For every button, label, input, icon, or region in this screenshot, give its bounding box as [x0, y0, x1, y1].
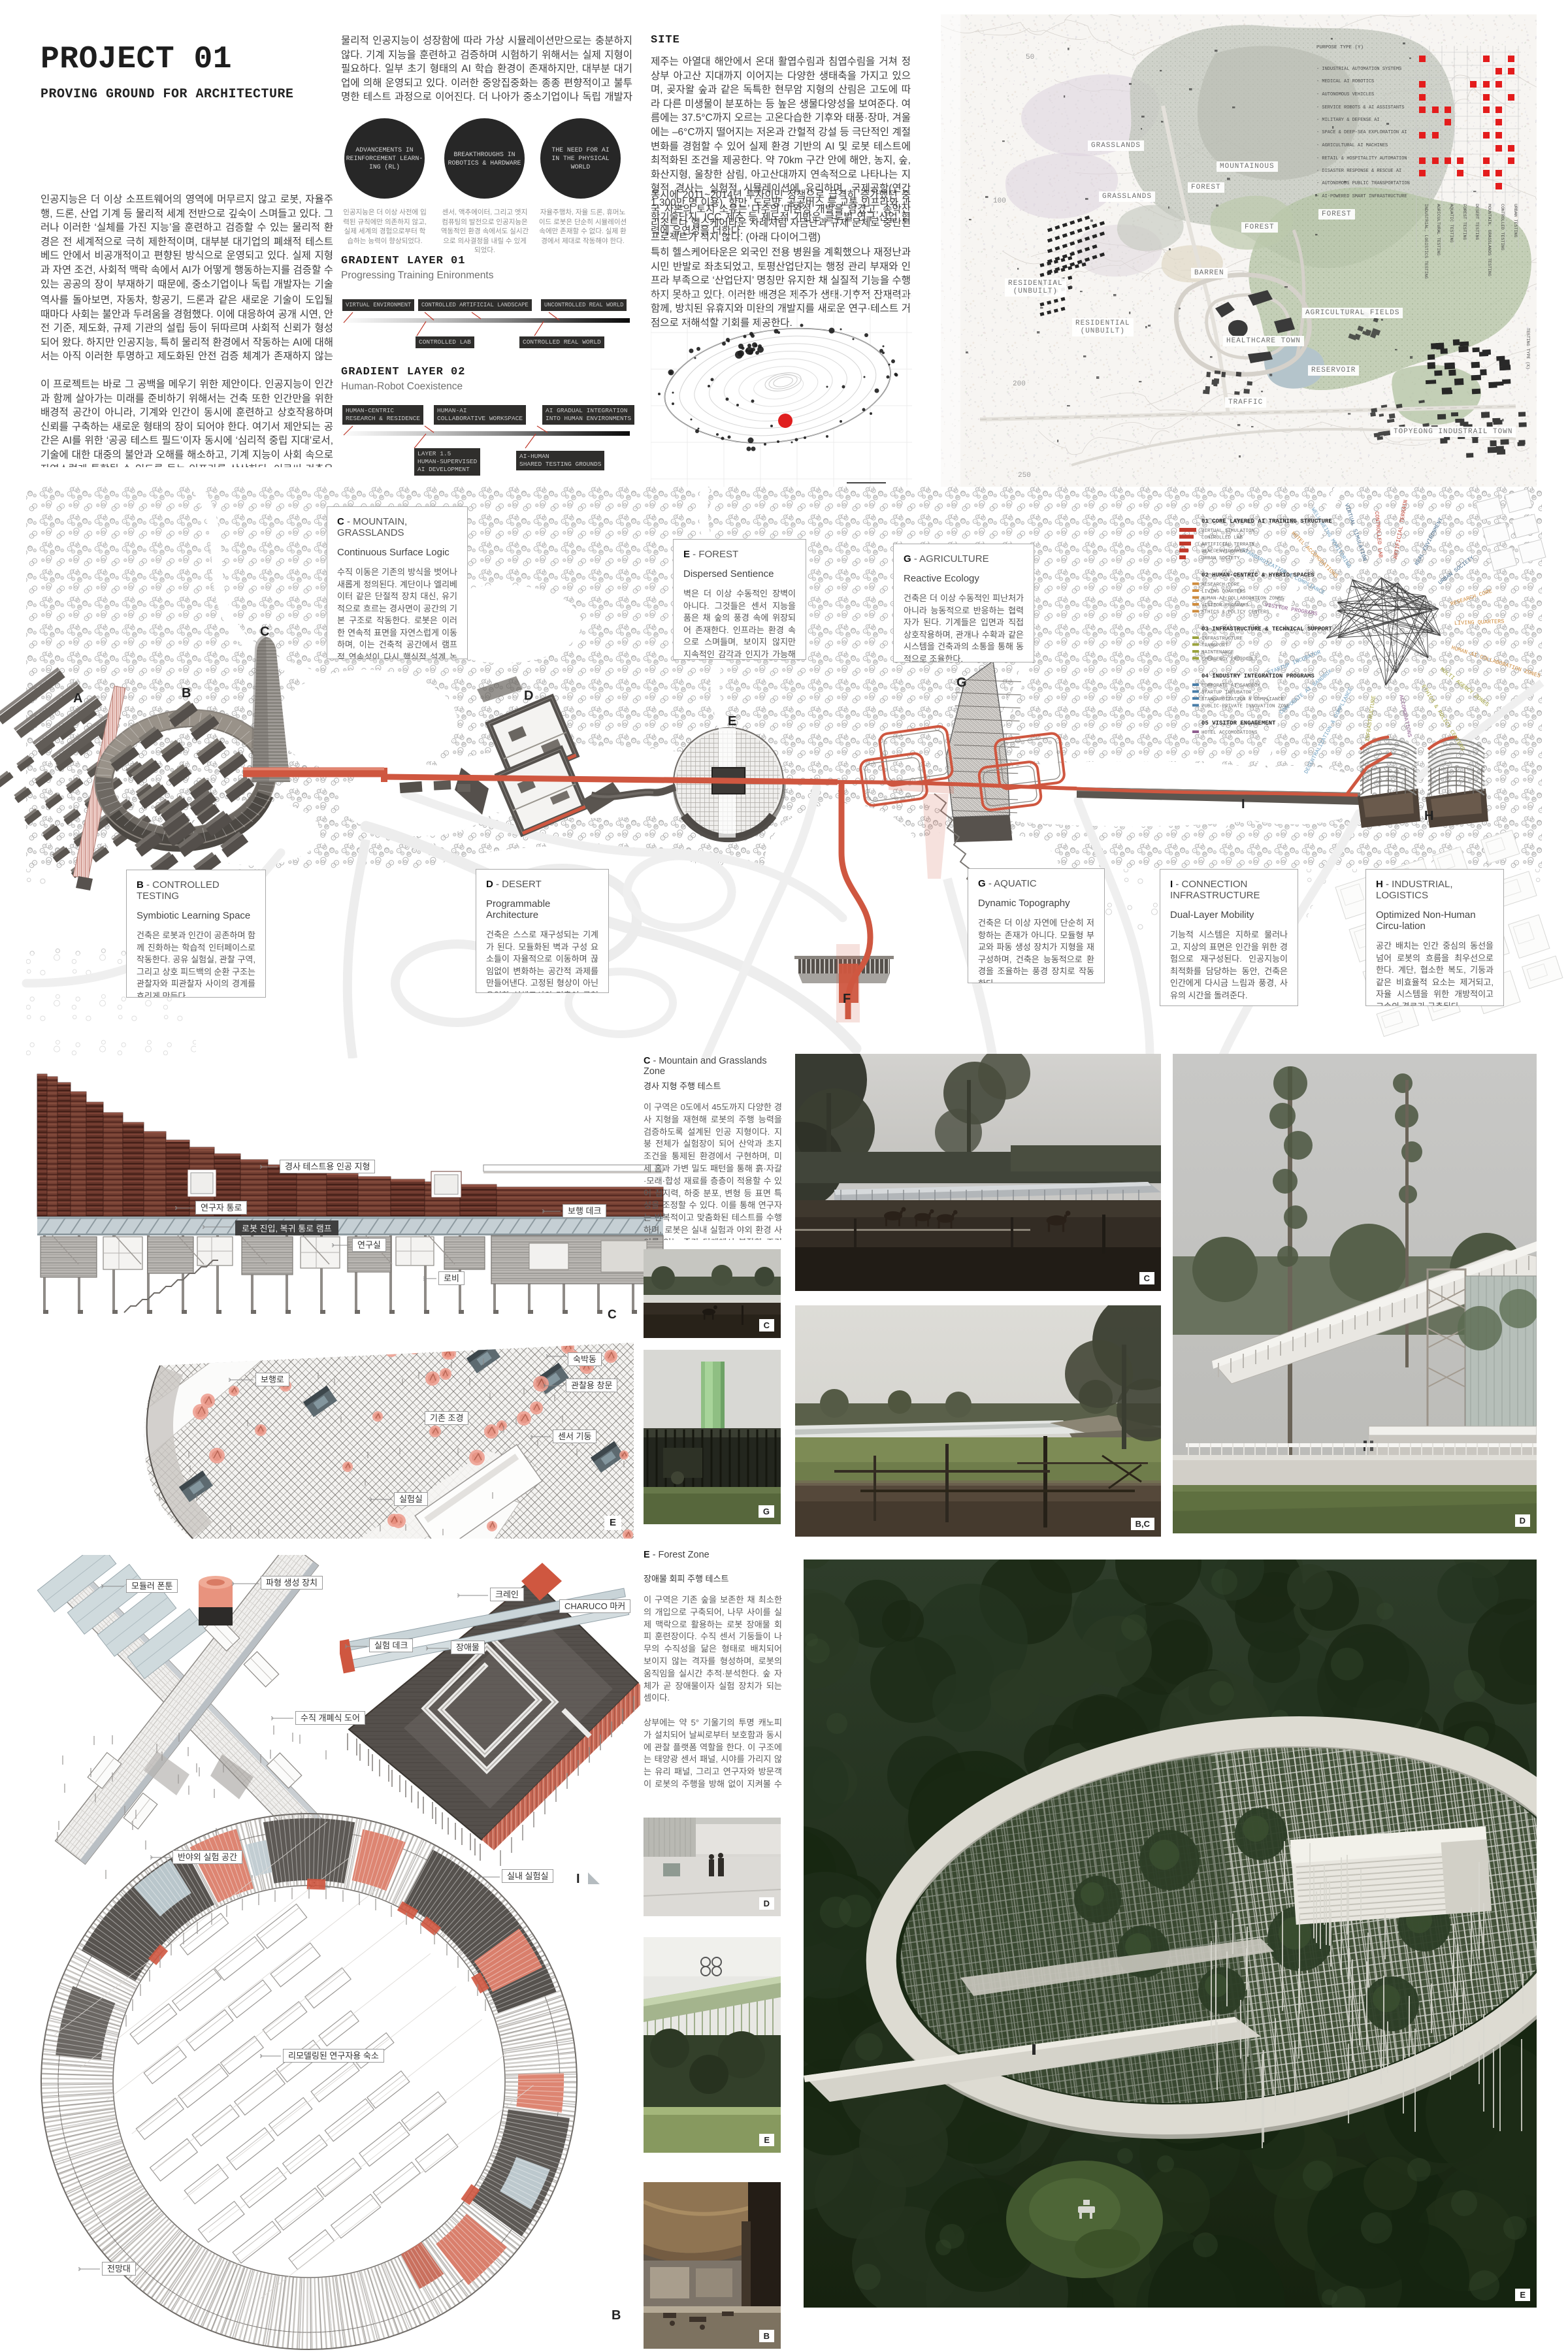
svg-text:INFRASTRUCTURE: INFRASTRUCTURE: [1201, 636, 1243, 642]
svg-text:B: B: [182, 686, 191, 700]
svg-text:STANDARDIZATION & COMPLIANCE: STANDARDIZATION & COMPLIANCE: [1201, 697, 1284, 702]
svg-text:G: G: [956, 676, 967, 690]
svg-text:LIVING QUARTERS: LIVING QUARTERS: [1201, 589, 1246, 595]
svg-text:HUMAN-AI COLLABORATION ZONES: HUMAN-AI COLLABORATION ZONES: [1201, 596, 1284, 602]
svg-text:- AUTONOMOUS PUBLIC TRANSPORTA: - AUTONOMOUS PUBLIC TRANSPORTATION: [1316, 181, 1410, 186]
svg-text:PURPOSE TYPE (Y): PURPOSE TYPE (Y): [1316, 45, 1364, 50]
svg-text:ARTIFICIAL TERRAIN: ARTIFICIAL TERRAIN: [1201, 542, 1254, 547]
svg-text:MAINTENANCE: MAINTENANCE: [1201, 650, 1234, 655]
svg-text:- AGRICULTURAL AI MACHINES: - AGRICULTURAL AI MACHINES: [1316, 143, 1388, 148]
svg-text:MOUNTAIN, GRASSLANDS TESTING: MOUNTAIN, GRASSLANDS TESTING: [1487, 204, 1492, 276]
svg-text:CONTROLLED LAB: CONTROLLED LAB: [1201, 536, 1243, 541]
svg-text:04 INDUSTRY INTEGRATION PROGRA: 04 INDUSTRY INTEGRATION PROGRAMS: [1201, 673, 1315, 679]
svg-text:- SPACE & DEEP-SEA EXPLORATION: - SPACE & DEEP-SEA EXPLORATION AI: [1316, 130, 1407, 135]
svg-text:INDUSTRIAL, LOGISTICS TESTING: INDUSTRIAL, LOGISTICS TESTING: [1424, 204, 1428, 279]
svg-text:HOTEL ACCOMODATIONS: HOTEL ACCOMODATIONS: [1201, 730, 1258, 736]
svg-text:FOREST TESTING: FOREST TESTING: [1462, 204, 1467, 240]
svg-text:01 CORE LAYERED AI TRAINING ST: 01 CORE LAYERED AI TRAINING STRUCTURE: [1201, 518, 1332, 525]
svg-text:- DISASTER RESPONSE & RESCUE A: - DISASTER RESPONSE & RESCUE AI: [1316, 169, 1401, 174]
svg-text:AQUATIC TESTING: AQUATIC TESTING: [1449, 204, 1454, 242]
svg-text:VISITOR PROGRAMS: VISITOR PROGRAMS: [1201, 603, 1249, 608]
svg-text:RESEARCH CORE: RESEARCH CORE: [1201, 583, 1240, 588]
svg-text:- AI-POWERED SMART INFRASTRUCT: - AI-POWERED SMART INFRASTRUCTURE: [1316, 194, 1407, 199]
svg-text:AGRICULTURAL TESTING: AGRICULTURAL TESTING: [1436, 204, 1441, 255]
svg-text:05 VISITOR ENGAGEMENT: 05 VISITOR ENGAGEMENT: [1201, 720, 1276, 727]
svg-text:D: D: [524, 689, 533, 703]
svg-text:DESERT TESTING: DESERT TESTING: [1475, 204, 1479, 240]
svg-text:F: F: [843, 992, 851, 1006]
svg-text:TRANSPORT: TRANSPORT: [1201, 644, 1228, 649]
svg-text:STARTUP INCUBATOR: STARTUP INCUBATOR: [1201, 691, 1252, 696]
svg-text:I: I: [1241, 797, 1245, 811]
svg-text:ETHICS & POLICY CENTERS: ETHICS & POLICY CENTERS: [1201, 610, 1269, 615]
svg-text:EMERGENCY PROTOCOLS: EMERGENCY PROTOCOLS: [1201, 657, 1258, 662]
svg-text:URBAN TESTING: URBAN TESTING: [1513, 204, 1518, 237]
svg-text:03 INFRASTRUCTURE & TECHNICAL: 03 INFRASTRUCTURE & TECHNICAL SUPPORT: [1201, 626, 1332, 632]
svg-text:CONTROLLED TESTING: CONTROLLED TESTING: [1500, 204, 1505, 250]
svg-text:- RETAIL & HOSPITALITY AUTOMAT: - RETAIL & HOSPITALITY AUTOMATION: [1316, 156, 1407, 161]
svg-text:- INDUSTRIAL AUTOMATION SYSTEM: - INDUSTRIAL AUTOMATION SYSTEMS: [1316, 67, 1401, 72]
svg-text:URBAN SOCIETY: URBAN SOCIETY: [1201, 556, 1240, 561]
svg-text:- MILITARY & DEFENSE AI: - MILITARY & DEFENSE AI: [1316, 118, 1380, 123]
svg-text:A: A: [73, 691, 82, 706]
svg-text:C: C: [260, 625, 269, 639]
svg-text:B: B: [612, 2308, 621, 2323]
svg-text:REAL ENVIRONMENT: REAL ENVIRONMENT: [1201, 549, 1249, 555]
svg-text:H: H: [1424, 809, 1433, 823]
svg-text:VIRTUAL SIMULATION: VIRTUAL SIMULATION: [1201, 529, 1254, 534]
svg-text:02 HUMAN-CENTRIC & HYBRID SPAC: 02 HUMAN-CENTRIC & HYBRID SPACES: [1201, 572, 1315, 579]
svg-text:- AUTONOMOUS VEHICLES: - AUTONOMOUS VEHICLES: [1316, 92, 1374, 97]
svg-text:CORPORATE AI SANDBOX: CORPORATE AI SANDBOX: [1201, 683, 1261, 689]
svg-text:E: E: [728, 714, 736, 728]
svg-text:- MEDICAL AI ROBOTICS: - MEDICAL AI ROBOTICS: [1316, 79, 1374, 84]
svg-text:- SERVICE ROBOTS & AI ASSISTAN: - SERVICE ROBOTS & AI ASSISTANTS: [1316, 105, 1404, 110]
svg-text:PUBLIC-PRIVATE INNOVATION ZONE: PUBLIC-PRIVATE INNOVATION ZONE: [1201, 704, 1290, 710]
svg-text:TESTING TYPE (X): TESTING TYPE (X): [1526, 328, 1530, 369]
